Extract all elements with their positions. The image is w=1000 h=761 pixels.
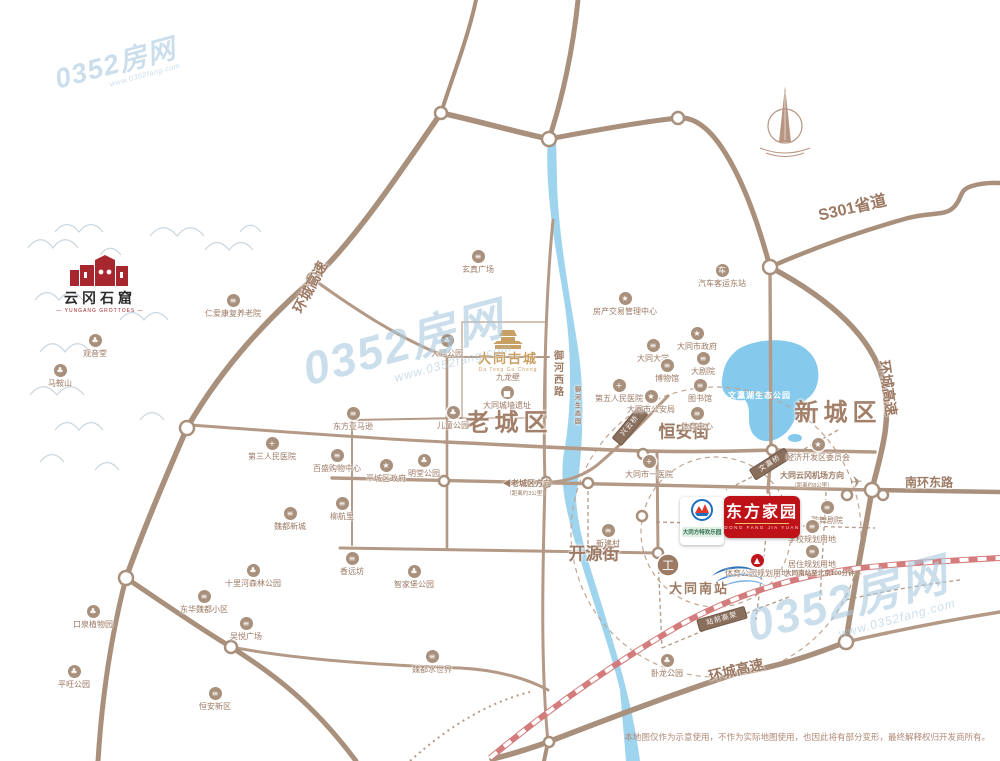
map-poi: ≡图书馆 [688, 379, 712, 403]
hosp-icon: + [266, 437, 279, 450]
map-poi: ≡仁爱康复养老院 [205, 294, 261, 318]
bld-icon: ≡ [209, 687, 222, 700]
map-poi: ≡体育中心 [681, 407, 713, 431]
poi-label: 智家堡公园 [394, 580, 434, 589]
poi-label: 平城区政府 [366, 474, 406, 483]
map-poi: ♣大同公园 [431, 334, 463, 358]
map-poi: ≡东方亚马逊 [333, 407, 373, 431]
railway-station-icon: 工 [655, 552, 681, 578]
park-icon: ♣ [247, 564, 260, 577]
map-disclaimer: 本地图仅作为示意使用，不作为实际地图使用，也因此将有部分变形，最终解释权归开发商… [570, 731, 990, 743]
poi-label: 儿童公园 [437, 421, 469, 430]
bld-icon: ≡ [346, 552, 359, 565]
map-poi: ▲体育公园规划用地 [725, 554, 789, 578]
poi-label: 观音堂 [83, 349, 107, 358]
park-icon: ♣ [661, 654, 674, 667]
map-poi: ★大同市政府 [677, 327, 717, 351]
gucheng-title: 大同古城 [470, 348, 546, 367]
lake-park-label: 文瀛湖生态公园 [728, 390, 791, 401]
bus-icon: 车 [716, 264, 729, 277]
park-icon: ♣ [54, 364, 67, 377]
south-station-label: 大同南站 [669, 578, 729, 597]
bld-icon: ≡ [426, 650, 439, 663]
poi-label: 平旺公园 [58, 680, 90, 689]
poi-label: 魏都水世界 [412, 665, 452, 674]
note-subtext: （距离约3公里） [503, 489, 551, 497]
park-icon: ♣ [408, 565, 421, 578]
poi-label: 马鞍山 [48, 379, 72, 388]
poi-label: 大同市政府 [677, 342, 717, 351]
road-label: 环城高速 [706, 654, 765, 686]
poi-label: 图书馆 [688, 394, 712, 403]
poi-label: 房产交易管理中心 [592, 307, 658, 316]
note-text: 大同南站至北京100分钟 → [785, 567, 863, 577]
map-poi: ♣口泉植物园 [73, 605, 113, 629]
bld-icon: ≡ [336, 497, 349, 510]
bld-icon: ≡ [691, 407, 704, 420]
poi-label: 柳航里 [330, 512, 354, 521]
dongfang-jiayuan-logo: 东方家园 DONG FANG JIA YUAN [724, 496, 800, 538]
note-text: 大同云冈机场方向 [780, 470, 844, 481]
park-icon: ♣ [441, 334, 454, 347]
datong-ancient-city-logo: 大同古城 Da Tong Gu Cheng [470, 326, 546, 373]
gov-icon: ★ [380, 459, 393, 472]
map-poi: ♣儿童公园 [437, 406, 469, 430]
location-map: 云冈石窟 — YUNGANG GROTTOES — 大同古城 Da Tong G… [0, 0, 1000, 761]
map-poi: ♣观音堂 [83, 334, 107, 358]
dongfang-title: 东方家园 [724, 504, 800, 522]
poi-label: 东华魏都小区 [180, 605, 228, 614]
map-poi: ♣明堂公园 [408, 454, 440, 478]
yungang-title: 云冈石窟 [48, 288, 152, 308]
poi-label: 九龙壁 [496, 373, 520, 382]
map-poi: ≡魏都新城 [274, 507, 306, 531]
map-overlay: 云冈石窟 — YUNGANG GROTTOES — 大同古城 Da Tong G… [0, 0, 1000, 761]
district-label: 新城区 [795, 393, 882, 428]
poi-label: 大同城墙遗址 [483, 401, 531, 410]
map-poi: ★经济开发区委员会 [785, 438, 851, 462]
map-poi: ♣智家堡公园 [394, 565, 434, 589]
poi-label: 明堂公园 [408, 469, 440, 478]
gold-divider [735, 523, 789, 524]
road-label: 御河西路 [550, 350, 565, 398]
poi-label: 魏都新城 [274, 522, 306, 531]
poi-label: 口泉植物园 [73, 620, 113, 629]
bld-icon: ≡ [240, 617, 253, 630]
poi-label: 百盛购物中心 [313, 464, 361, 473]
bld-icon: ≡ [694, 379, 707, 392]
map-poi: ▅大同城墙遗址 [483, 386, 531, 410]
map-poi: ≡香远坊 [340, 552, 364, 576]
map-poi: ♣卧龙公园 [651, 654, 683, 678]
park-icon: ♣ [87, 605, 100, 618]
hosp-icon: + [643, 455, 656, 468]
poi-label: 东方亚马逊 [333, 422, 373, 431]
map-poi: ≡新建村 [596, 524, 620, 548]
road-label: 环城高速 [288, 258, 332, 317]
map-poi: ≡大剧院 [691, 352, 715, 376]
bld-icon: ≡ [284, 507, 297, 520]
direction-note: 大同南站至北京100分钟 → [785, 567, 863, 577]
poi-label: 香远坊 [340, 567, 364, 576]
poi-label: 十里河森林公园 [225, 579, 281, 588]
poi-label: 体育公园规划用地 [725, 569, 789, 578]
map-poi: ≡魏都水世界 [412, 650, 452, 674]
poi-label: 大同市公安局 [623, 405, 679, 414]
south-station: 工 大同南站 [655, 552, 681, 583]
map-poi: ♣十里河森林公园 [225, 564, 281, 588]
gov-icon: ★ [691, 327, 704, 340]
map-poi: +大同市一医院 [625, 455, 673, 479]
watermark-url: www.0352fang.com [754, 596, 957, 663]
dongfang-pinyin: DONG FANG JIA YUAN [724, 525, 800, 530]
bld-icon: ≡ [661, 359, 674, 372]
bld-icon: ≡ [347, 407, 360, 420]
svg-text:工: 工 [662, 559, 674, 573]
yungang-grottoes-logo: 云冈石窟 — YUNGANG GROTTOES — [48, 255, 152, 314]
map-poi: ♣马鞍山 [48, 364, 72, 388]
map-poi: ★房产交易管理中心 [592, 292, 658, 316]
bld-icon: ≡ [821, 501, 834, 514]
direction-note: ◀老城区方向（距离约3公里） [503, 478, 551, 497]
poi-label: 第三人民医院 [248, 452, 296, 461]
map-poi: 车汽车客运东站 [698, 264, 746, 288]
poi-label: 博物馆 [655, 374, 679, 383]
watermark-text: 0352房网 [52, 34, 179, 93]
note-text: ◀老城区方向 [503, 478, 551, 489]
map-poi: ≡吴悦广场 [230, 617, 262, 641]
road-label: 御河生态园 [573, 386, 582, 426]
park-icon: ♣ [447, 406, 460, 419]
yungang-subtitle: — YUNGANG GROTTOES — [48, 308, 152, 314]
fangte-emblem-icon [691, 499, 713, 521]
bld-icon: ≡ [647, 339, 660, 352]
stadium-icon: ▲ [751, 554, 764, 567]
map-poi: ≡柳航里 [330, 497, 354, 521]
gov-icon: ★ [645, 390, 658, 403]
road-label: 南环东路 [905, 474, 953, 491]
map-poi: ≡东华魏都小区 [180, 590, 228, 614]
airplane-icon: ✈ [849, 472, 864, 492]
map-poi: ≡恒安新区 [199, 687, 231, 711]
watermark-url: www.0352fang.com [59, 61, 181, 101]
watermark: 0352房网www.0352fang.com [52, 34, 181, 101]
bridge-label: 站前高架 [696, 606, 748, 632]
fangte-title: 大同方特欢乐园 [682, 527, 722, 537]
park-icon: ♣ [418, 454, 431, 467]
poi-label: 体育中心 [681, 422, 713, 431]
direction-note: 大同云冈机场方向（距离约8公里） [780, 470, 844, 489]
wall-icon: ▅ [501, 386, 514, 399]
park-icon: ♣ [89, 334, 102, 347]
poi-label: 卧龙公园 [651, 669, 683, 678]
map-poi: ≡居住规划用地 [788, 545, 836, 569]
bld-icon: ≡ [472, 250, 485, 263]
map-poi: +第三人民医院 [248, 437, 296, 461]
fangte-park-logo: 大同方特欢乐园 [680, 497, 724, 545]
poi-label: 恒安新区 [199, 702, 231, 711]
poi-label: 吴悦广场 [230, 632, 262, 641]
map-poi: ≡博物馆 [655, 359, 679, 383]
note-subtext: （距离约8公里） [780, 481, 844, 489]
poi-label: 大同市一医院 [625, 470, 673, 479]
map-poi: ★平城区政府 [366, 459, 406, 483]
bld-icon: ≡ [806, 520, 819, 533]
bld-icon: ≡ [602, 524, 615, 537]
poi-label: 经济开发区委员会 [785, 453, 851, 462]
gov-icon: ★ [619, 292, 632, 305]
park-icon: ♣ [68, 665, 81, 678]
bld-icon: ≡ [227, 294, 240, 307]
poi-label: 汽车客运东站 [698, 279, 746, 288]
map-poi: ≡玄真广场 [462, 250, 494, 274]
poi-label: 仁爱康复养老院 [205, 309, 261, 318]
road-label: S301省道 [816, 187, 889, 226]
bld-icon: ≡ [806, 545, 819, 558]
poi-label: 大同公园 [431, 349, 463, 358]
poi-label: 新建村 [596, 539, 620, 548]
bld-icon: ≡ [331, 449, 344, 462]
bld-icon: ≡ [198, 590, 211, 603]
map-poi: ★大同市公安局 [623, 390, 679, 414]
gov-icon: ★ [812, 438, 825, 451]
map-poi: ≡百盛购物中心 [313, 449, 361, 473]
gucheng-pinyin: Da Tong Gu Cheng [470, 367, 546, 373]
map-poi: ♣平旺公园 [58, 665, 90, 689]
poi-label: 玄真广场 [462, 265, 494, 274]
poi-label: 大剧院 [691, 367, 715, 376]
bld-icon: ≡ [697, 352, 710, 365]
